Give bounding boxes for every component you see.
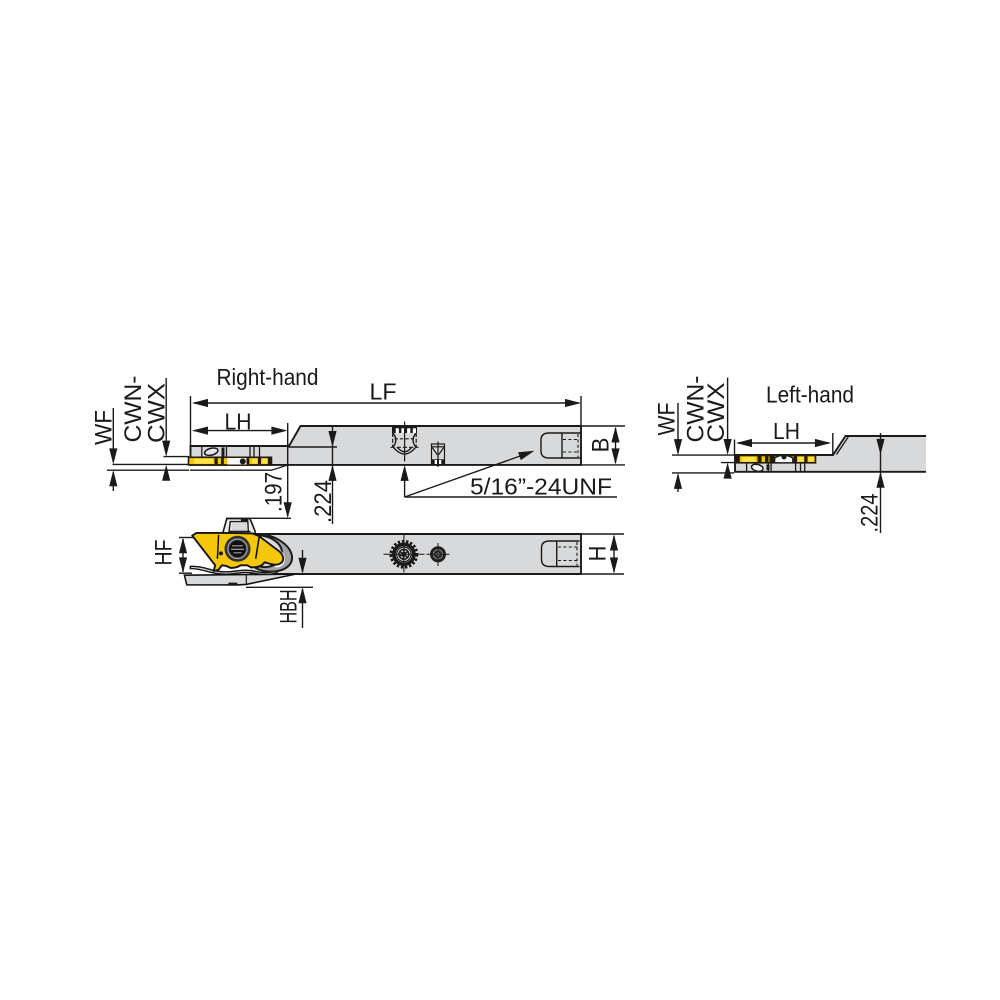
svg-text:Left-hand: Left-hand [766,382,854,408]
svg-text:5/16”-24UNF: 5/16”-24UNF [470,474,612,500]
svg-text:Right-hand: Right-hand [217,364,319,390]
svg-text:CWX: CWX [703,383,730,443]
svg-text:H: H [585,546,612,562]
svg-text:HF: HF [151,540,178,566]
svg-text:.197: .197 [261,472,288,512]
svg-text:LH: LH [773,418,800,444]
svg-text:HBH: HBH [276,590,303,624]
svg-text:.224: .224 [857,494,884,533]
svg-text:LF: LF [370,379,397,405]
svg-text:WF: WF [654,403,681,436]
svg-text:B: B [588,438,615,453]
